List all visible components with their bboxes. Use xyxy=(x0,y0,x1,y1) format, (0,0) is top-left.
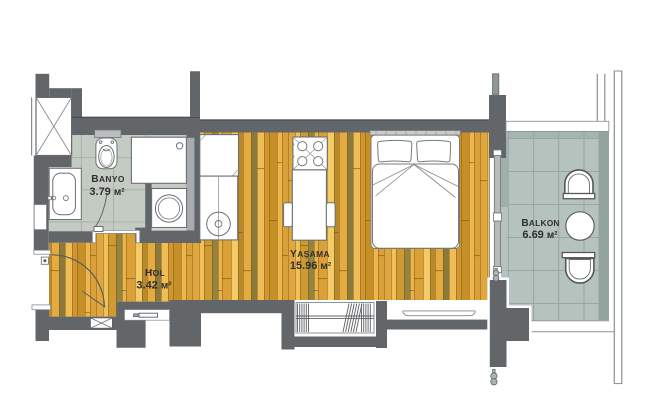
svg-text:6.69 м²: 6.69 м² xyxy=(522,229,558,241)
svg-text:3.42 м²: 3.42 м² xyxy=(136,280,172,292)
svg-text:BALKON: BALKON xyxy=(521,218,559,229)
svg-text:YAŞAMA: YAŞAMA xyxy=(290,249,330,260)
svg-text:3.79 м²: 3.79 м² xyxy=(89,186,125,198)
svg-text:BANYO: BANYO xyxy=(91,174,125,185)
svg-text:15.96 м²: 15.96 м² xyxy=(290,260,332,272)
svg-text:HOL: HOL xyxy=(145,268,165,279)
